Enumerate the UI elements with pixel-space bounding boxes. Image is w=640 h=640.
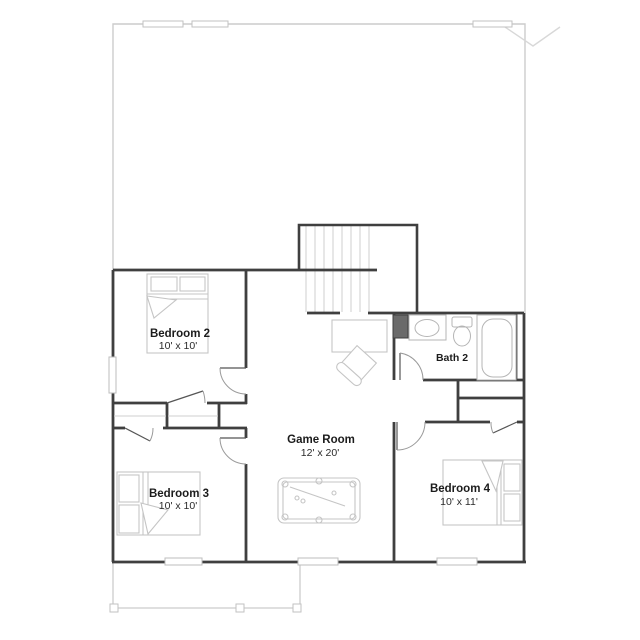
window-icon xyxy=(165,558,202,565)
floorplan-canvas: Bedroom 2 10' x 10' Bedroom 3 10' x 10' … xyxy=(0,0,640,640)
door-closet-bedroom2 xyxy=(167,391,205,403)
porch-post xyxy=(293,604,301,612)
plumbing-chase xyxy=(393,315,408,338)
door-closet-bedroom3 xyxy=(125,428,153,441)
bath2-label: Bath 2 xyxy=(436,352,468,364)
bedroom3-label: Bedroom 3 xyxy=(149,488,209,500)
gameroom-label: Game Room xyxy=(287,434,355,446)
floorplan-drawing: Bedroom 2 10' x 10' Bedroom 3 10' x 10' … xyxy=(0,0,640,640)
door-bath2 xyxy=(400,353,423,380)
porch-post xyxy=(236,604,244,612)
window-icon xyxy=(192,21,228,27)
pillow xyxy=(504,464,520,491)
bathtub xyxy=(477,315,516,380)
door-closet-bedroom4 xyxy=(491,422,517,433)
bedroom2-label: Bedroom 2 xyxy=(150,328,210,340)
bedroom2-dims: 10' x 10' xyxy=(159,340,197,352)
pillow xyxy=(180,277,205,291)
window-icon xyxy=(473,21,512,27)
door-bedroom4 xyxy=(397,422,425,450)
window-icon xyxy=(437,558,477,565)
bedroom4-label: Bedroom 4 xyxy=(430,483,491,495)
porch-outline xyxy=(113,562,300,608)
bedroom3-dims: 10' x 10' xyxy=(159,500,197,512)
pool-table xyxy=(278,478,360,523)
window-icon xyxy=(298,558,338,565)
pillow xyxy=(504,494,520,521)
toilet xyxy=(452,317,472,346)
roof-line xyxy=(505,27,560,46)
pillow xyxy=(151,277,177,291)
bedroom4-dims: 10' x 11' xyxy=(440,496,478,508)
window-icon xyxy=(143,21,183,27)
pillow xyxy=(119,505,139,533)
door-bedroom3 xyxy=(220,438,246,464)
door-bedroom2 xyxy=(220,368,246,394)
bath-fixtures xyxy=(393,315,516,380)
porch-post xyxy=(110,604,118,612)
gameroom-dims: 12' x 20' xyxy=(301,447,339,459)
window-icon xyxy=(109,357,116,393)
pillow xyxy=(119,475,139,502)
sink-vanity xyxy=(409,315,446,340)
